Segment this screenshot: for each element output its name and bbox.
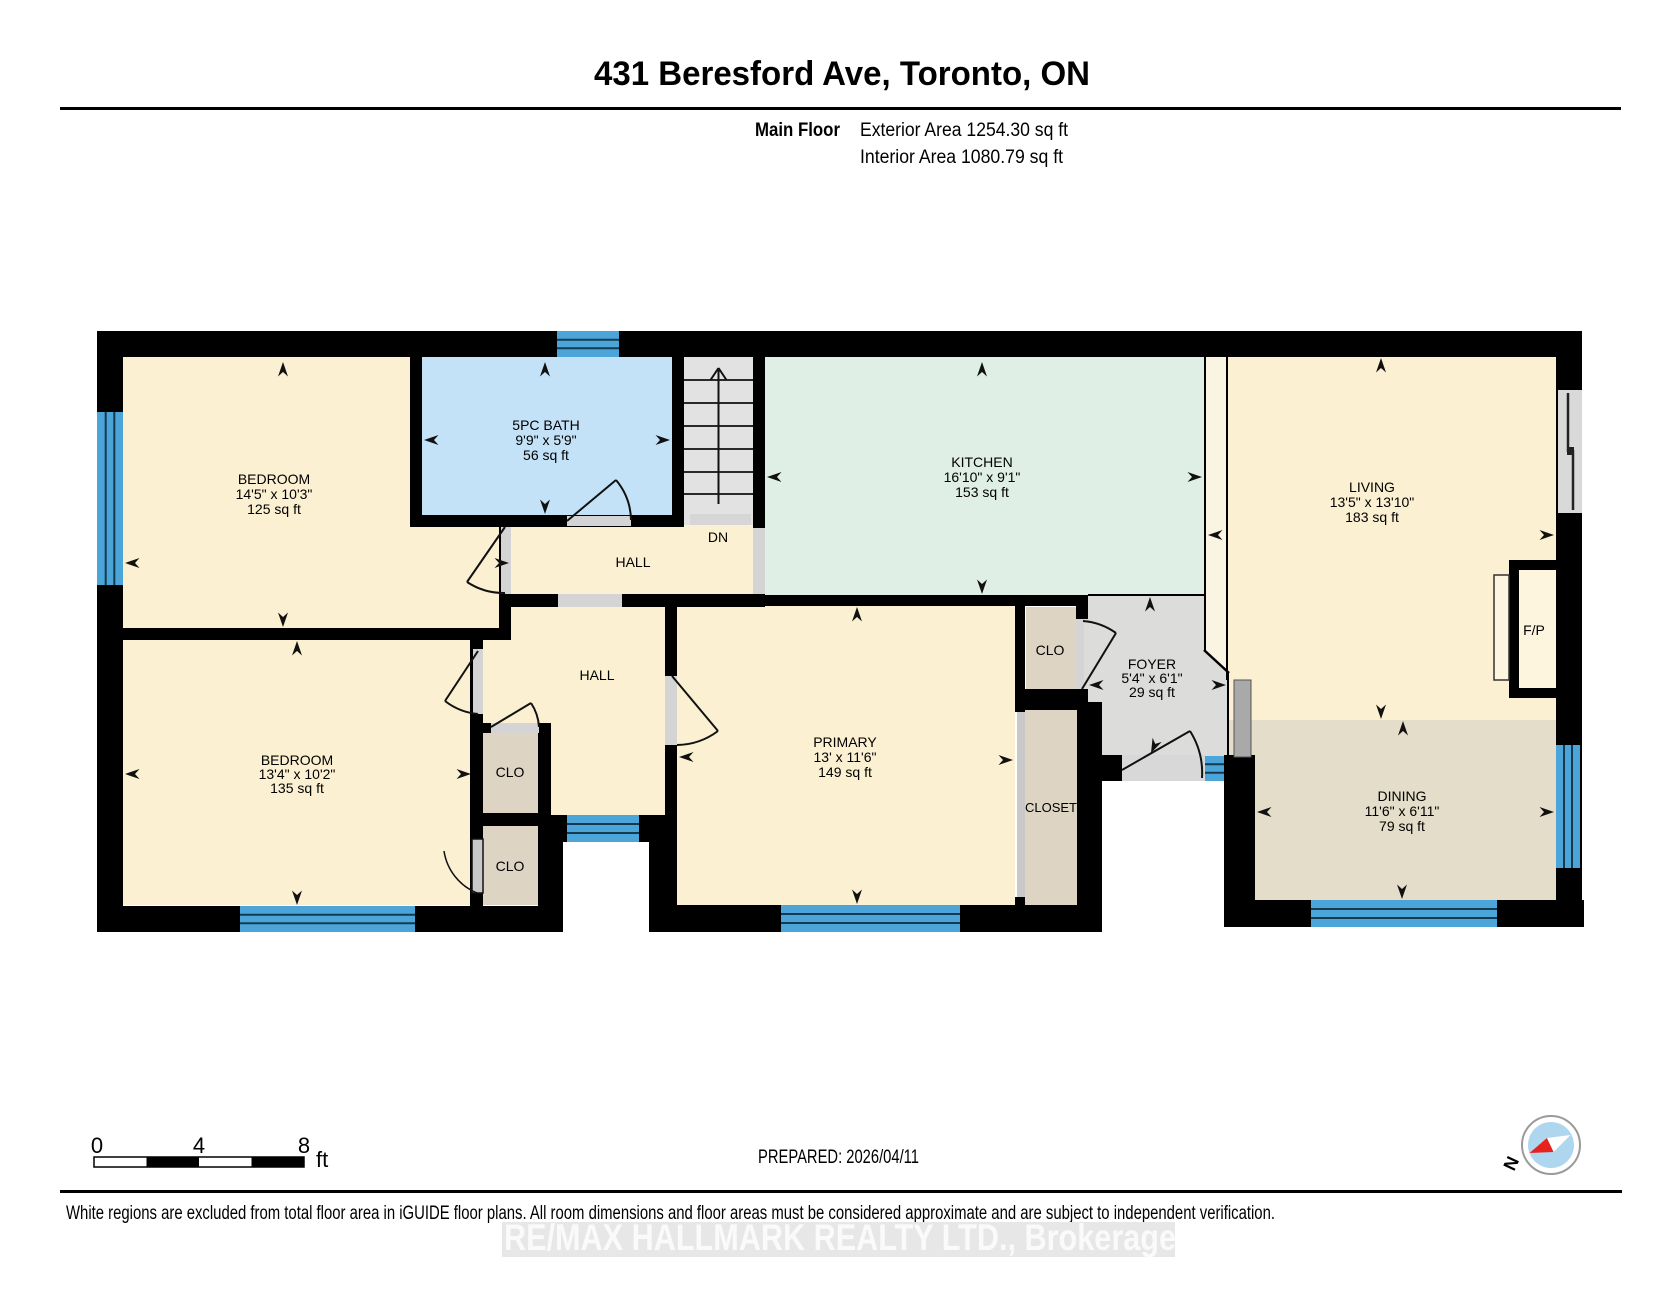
- svg-text:KITCHEN: KITCHEN: [951, 454, 1012, 470]
- svg-text:Main Floor: Main Floor: [755, 120, 841, 141]
- svg-text:BEDROOM: BEDROOM: [238, 471, 310, 487]
- svg-text:5PC BATH: 5PC BATH: [512, 417, 579, 433]
- svg-text:CLO: CLO: [496, 764, 525, 780]
- svg-text:4: 4: [193, 1133, 205, 1158]
- svg-text:PRIMARY: PRIMARY: [813, 734, 877, 750]
- svg-text:11'6" x 6'11": 11'6" x 6'11": [1365, 803, 1440, 819]
- svg-text:0: 0: [91, 1133, 103, 1158]
- svg-text:29 sq ft: 29 sq ft: [1129, 684, 1175, 700]
- svg-text:79 sq ft: 79 sq ft: [1379, 818, 1425, 834]
- svg-text:DN: DN: [708, 529, 728, 545]
- svg-text:CLO: CLO: [1036, 642, 1065, 658]
- svg-text:149 sq ft: 149 sq ft: [818, 764, 872, 780]
- svg-text:RE/MAX HALLMARK REALTY LTD., B: RE/MAX HALLMARK REALTY LTD., Brokerage: [504, 1217, 1176, 1258]
- svg-text:13'5" x 13'10": 13'5" x 13'10": [1330, 494, 1415, 510]
- svg-text:13' x 11'6": 13' x 11'6": [814, 749, 877, 765]
- svg-text:431 Beresford Ave, Toronto, ON: 431 Beresford Ave, Toronto, ON: [594, 55, 1090, 93]
- svg-text:8: 8: [298, 1133, 310, 1158]
- svg-text:N: N: [1499, 1153, 1523, 1173]
- svg-text:Interior Area 1080.79 sq ft: Interior Area 1080.79 sq ft: [860, 147, 1064, 168]
- svg-text:HALL: HALL: [579, 667, 614, 683]
- svg-text:CLOSET: CLOSET: [1025, 800, 1077, 815]
- svg-text:16'10" x 9'1": 16'10" x 9'1": [944, 469, 1021, 485]
- svg-text:183 sq ft: 183 sq ft: [1345, 509, 1399, 525]
- svg-text:125 sq ft: 125 sq ft: [247, 501, 301, 517]
- svg-text:CLO: CLO: [496, 858, 525, 874]
- svg-text:HALL: HALL: [615, 554, 650, 570]
- svg-text:F/P: F/P: [1523, 622, 1545, 638]
- svg-text:9'9" x 5'9": 9'9" x 5'9": [515, 432, 576, 448]
- svg-text:153 sq ft: 153 sq ft: [955, 484, 1009, 500]
- svg-text:14'5" x 10'3": 14'5" x 10'3": [236, 486, 313, 502]
- svg-text:ft: ft: [316, 1147, 328, 1172]
- svg-text:135 sq ft: 135 sq ft: [270, 780, 324, 796]
- svg-text:56 sq ft: 56 sq ft: [523, 447, 569, 463]
- svg-text:PREPARED: 2026/04/11: PREPARED: 2026/04/11: [758, 1147, 919, 1168]
- svg-text:Exterior Area 1254.30 sq ft: Exterior Area 1254.30 sq ft: [860, 120, 1069, 141]
- svg-text:DINING: DINING: [1378, 788, 1427, 804]
- svg-text:LIVING: LIVING: [1349, 479, 1395, 495]
